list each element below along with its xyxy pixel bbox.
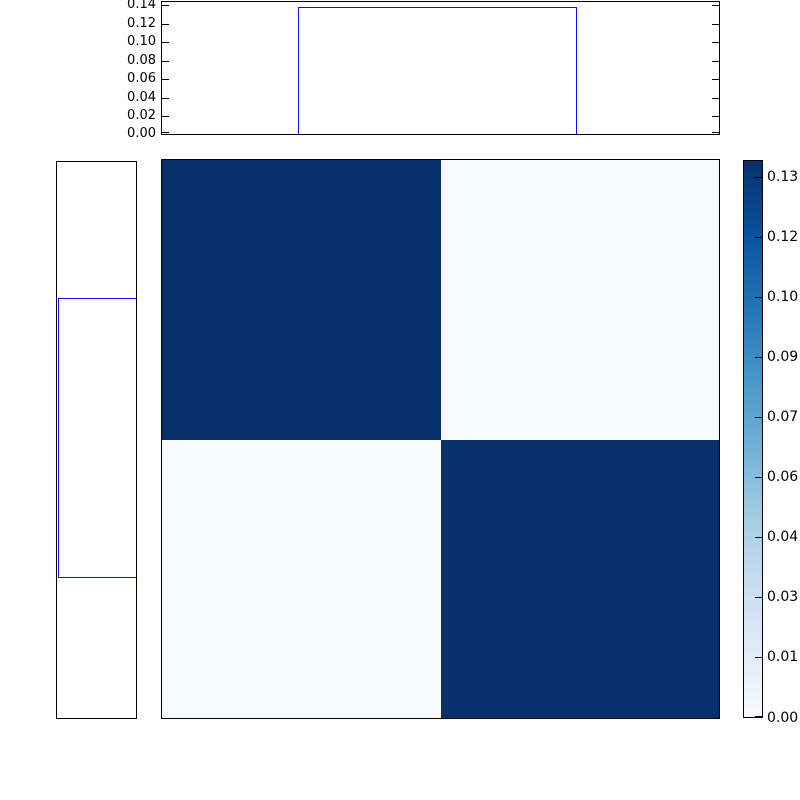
colorbar-tick [755,657,762,658]
top-axis-tick [162,98,169,99]
heatmap-cell-r1c0 [162,440,441,718]
left-step-line [58,298,136,578]
figure-canvas: 0.14 0.12 0.10 0.08 0.06 0.04 0.02 0.00 … [0,0,800,800]
colorbar-tick-label: 0.12 [767,228,800,246]
colorbar-tick [755,237,762,238]
top-ytick-label: 0.12 [98,16,156,32]
top-axis-tick [712,24,719,25]
top-axis-tick [162,61,169,62]
heatmap-cell-r1c1 [441,440,719,718]
colorbar-tick [755,297,762,298]
colorbar-tick-label: 0.10 [767,288,800,306]
colorbar-tick-label: 0.03 [767,588,800,606]
colorbar-tick-label: 0.06 [767,468,800,486]
heatmap-cell-r0c1 [441,160,719,440]
top-ytick-label: 0.02 [98,108,156,124]
top-ytick-label: 0.10 [98,34,156,50]
top-axis-tick [162,5,169,6]
top-axis-tick [162,132,169,133]
colorbar-tick [755,417,762,418]
top-axis-tick [162,79,169,80]
top-ytick-label: 0.04 [98,90,156,106]
top-axis-tick [712,42,719,43]
colorbar-tick-label: 0.09 [767,348,800,366]
top-ytick-label: 0.00 [98,126,156,142]
top-axis-tick [162,42,169,43]
top-ytick-label: 0.14 [98,0,156,13]
top-axis-tick [712,79,719,80]
heatmap-cell-r0c0 [162,160,441,440]
top-axis-tick [712,98,719,99]
colorbar-tick-label: 0.07 [767,408,800,426]
top-axis-tick [162,24,169,25]
top-axis-tick [712,116,719,117]
colorbar-tick [755,477,762,478]
colorbar-tick-label: 0.04 [767,528,800,546]
colorbar-tick [755,597,762,598]
colorbar-tick-label: 0.00 [767,709,800,727]
colorbar-tick [755,537,762,538]
top-axis-tick [712,5,719,6]
top-axis-tick [162,116,169,117]
top-ytick-label: 0.06 [98,71,156,87]
colorbar-tick [755,716,762,717]
colorbar-tick-label: 0.01 [767,648,800,666]
heatmap [161,159,720,719]
top-ytick-label: 0.08 [98,53,156,69]
top-step-line [298,7,577,134]
colorbar [743,160,763,718]
colorbar-tick [755,177,762,178]
colorbar-tick [755,357,762,358]
colorbar-tick-label: 0.13 [767,168,800,186]
top-axis-tick [712,61,719,62]
top-axis-tick [712,132,719,133]
